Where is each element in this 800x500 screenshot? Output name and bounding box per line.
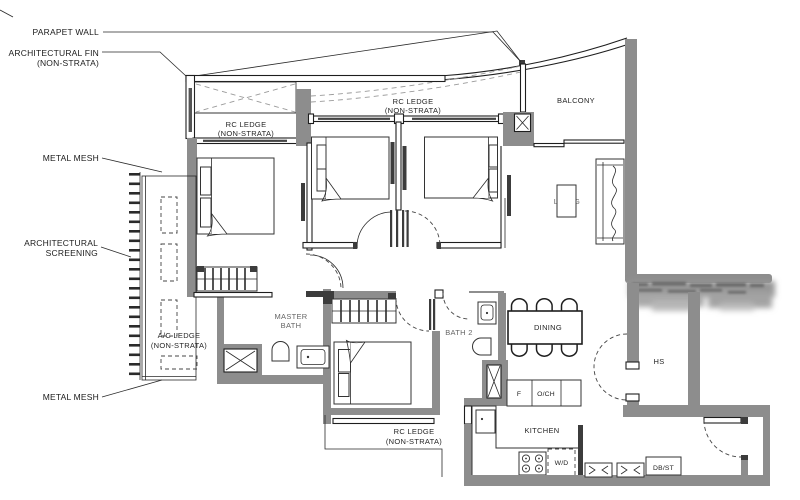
- svg-text:ARCHITECTURAL FIN: ARCHITECTURAL FIN: [9, 48, 99, 58]
- svg-text:KITCHEN: KITCHEN: [524, 426, 559, 435]
- svg-text:(NON-STRATA): (NON-STRATA): [385, 106, 441, 115]
- svg-text:METAL MESH: METAL MESH: [43, 153, 99, 163]
- svg-text:RC LEDGE: RC LEDGE: [394, 427, 435, 436]
- svg-text:RC LEDGE: RC LEDGE: [226, 120, 267, 129]
- svg-text:(NON-STRATA): (NON-STRATA): [218, 129, 274, 138]
- svg-text:BALCONY: BALCONY: [557, 96, 595, 105]
- svg-text:SCREENING: SCREENING: [46, 248, 98, 258]
- svg-text:(NON-STRATA): (NON-STRATA): [37, 58, 99, 68]
- svg-text:BATH: BATH: [281, 321, 302, 330]
- svg-text:MASTER: MASTER: [274, 312, 307, 321]
- svg-text:O/CH: O/CH: [537, 391, 555, 398]
- svg-text:(NON-STRATA): (NON-STRATA): [151, 341, 207, 350]
- svg-text:W/D: W/D: [555, 460, 569, 467]
- svg-text:PARAPET WALL: PARAPET WALL: [33, 27, 100, 37]
- svg-text:HS: HS: [653, 357, 664, 366]
- svg-text:(NON-STRATA): (NON-STRATA): [386, 437, 442, 446]
- svg-text:BATH 2: BATH 2: [445, 328, 473, 337]
- svg-text:F: F: [517, 391, 521, 398]
- svg-text:DB/ST: DB/ST: [653, 465, 674, 472]
- svg-text:A/C LEDGE: A/C LEDGE: [158, 331, 201, 340]
- svg-text:ARCHITECTURAL: ARCHITECTURAL: [24, 238, 98, 248]
- svg-text:METAL MESH: METAL MESH: [43, 392, 99, 402]
- svg-text:DINING: DINING: [534, 323, 562, 332]
- svg-text:RC LEDGE: RC LEDGE: [393, 97, 434, 106]
